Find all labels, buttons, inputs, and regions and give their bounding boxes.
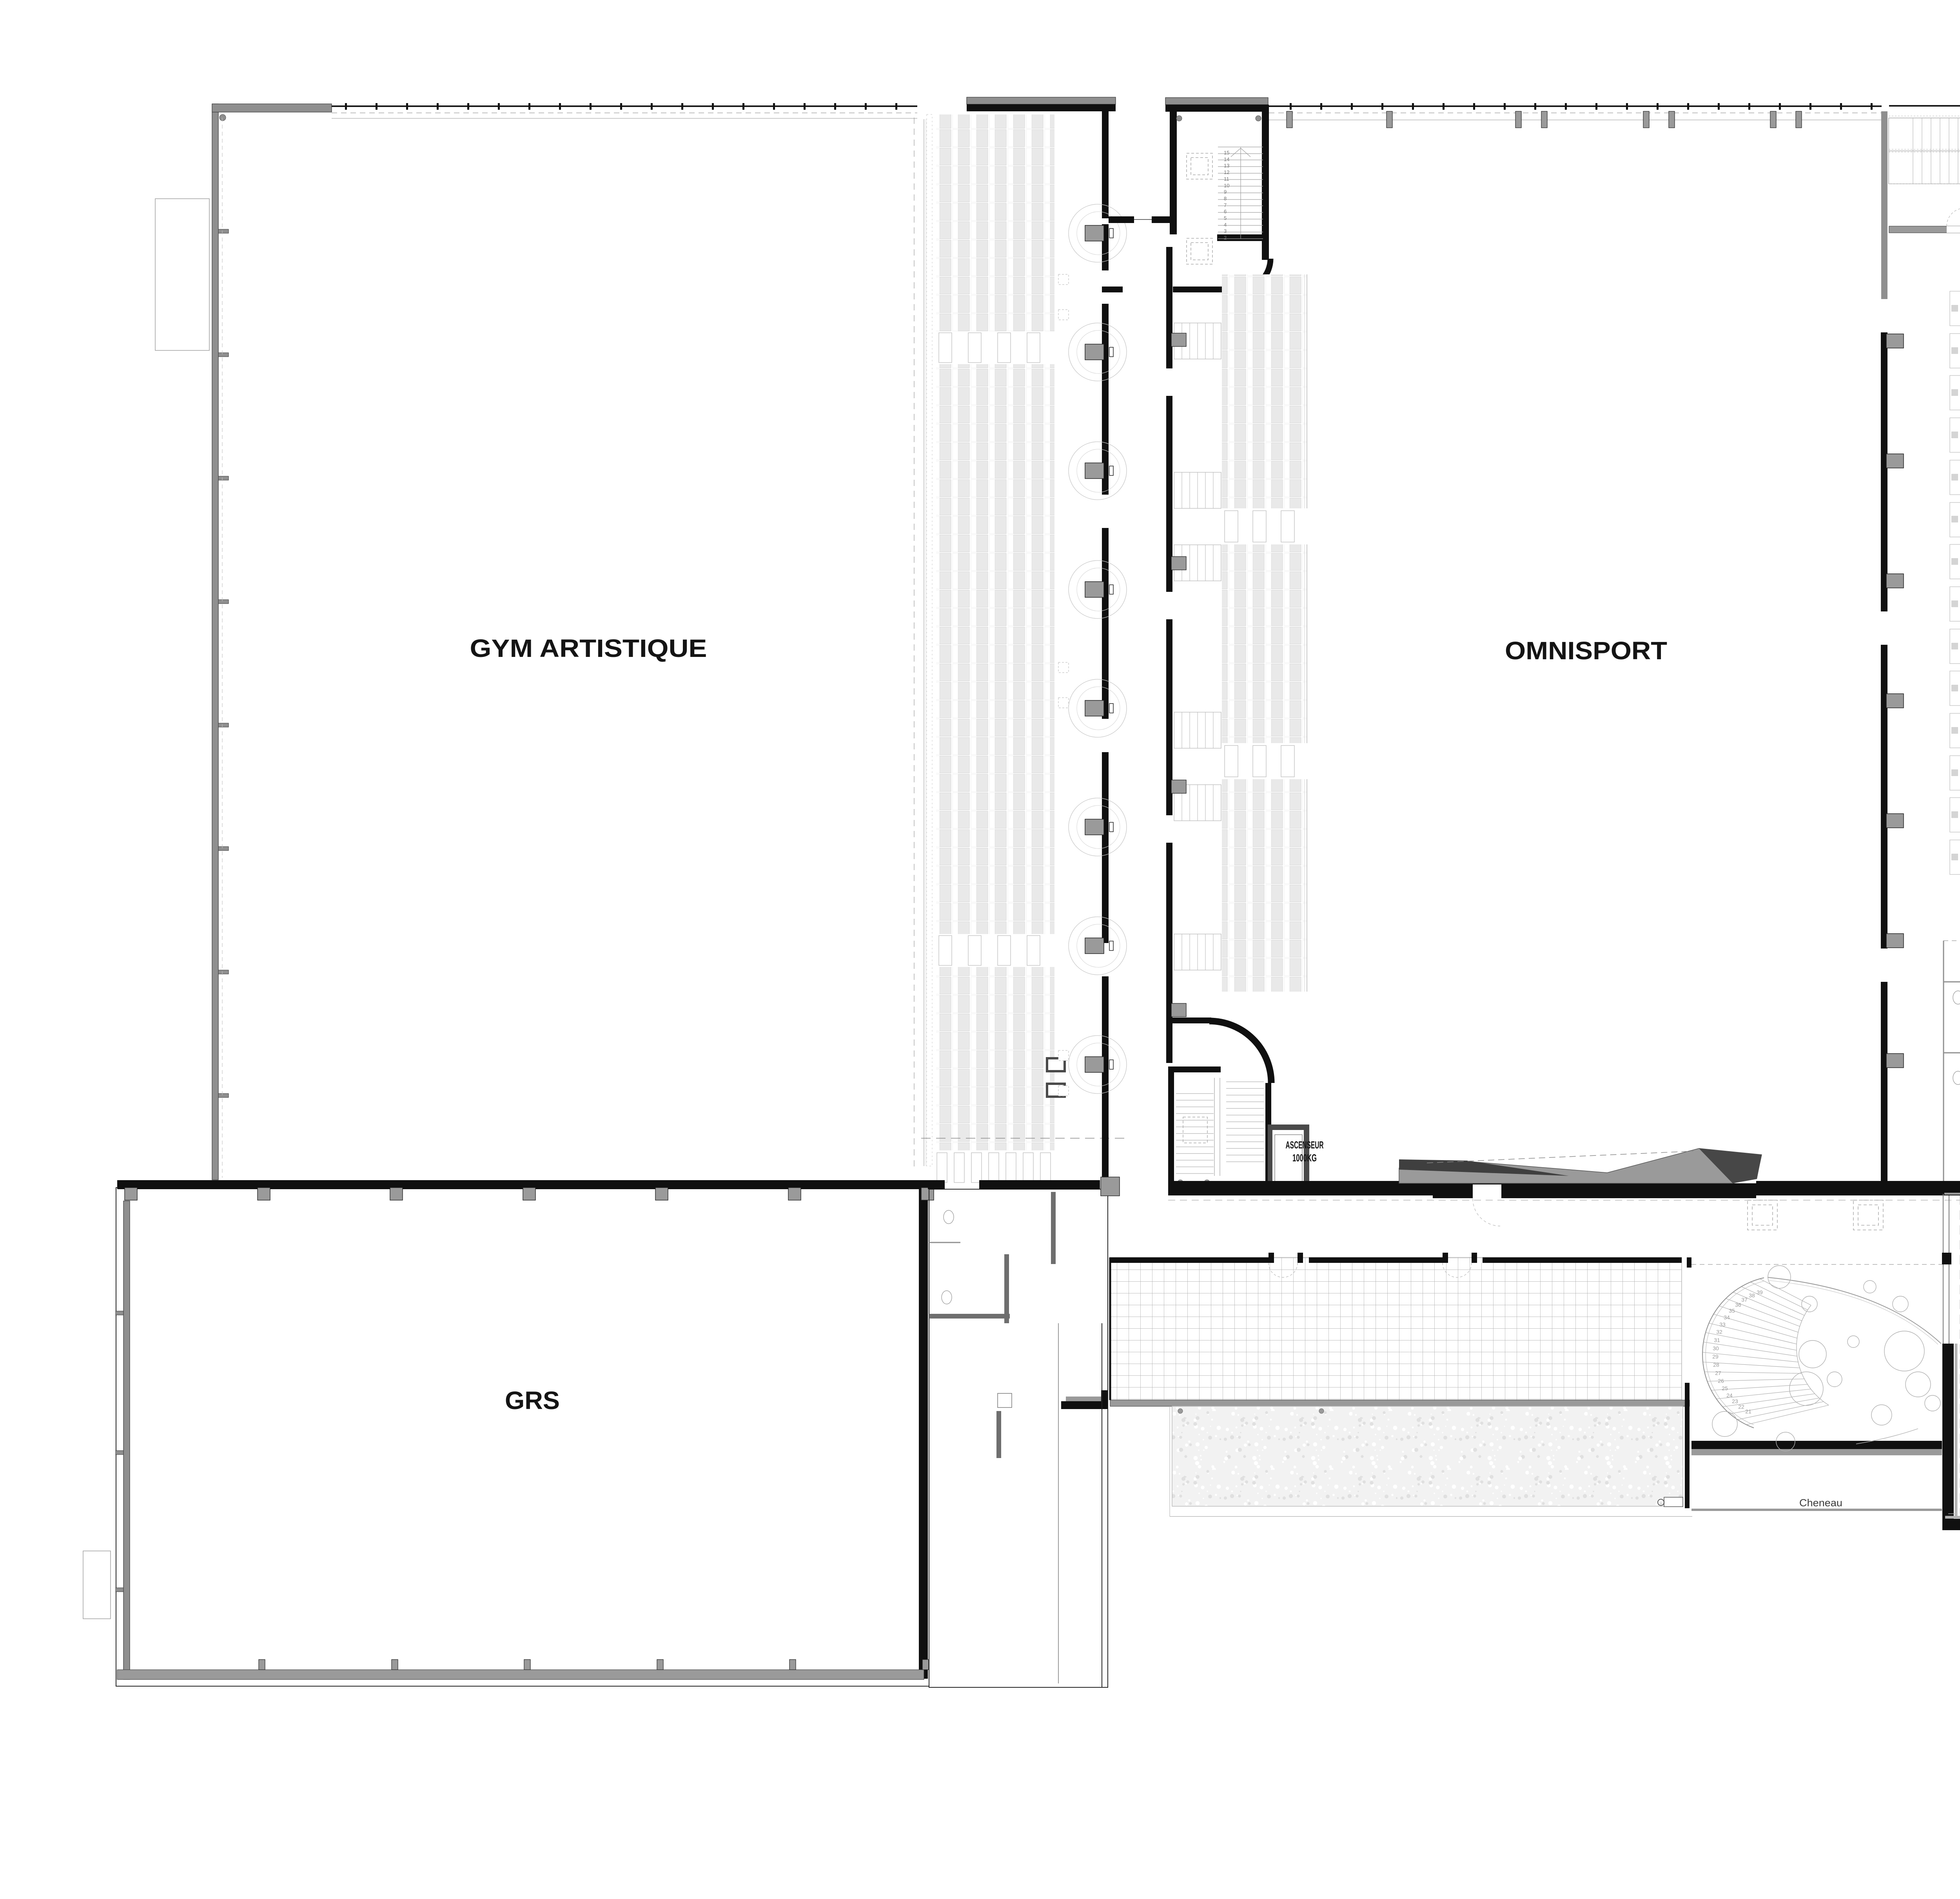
svg-text:39: 39 — [1757, 1289, 1763, 1295]
svg-text:31: 31 — [1714, 1337, 1720, 1343]
svg-text:34: 34 — [1724, 1314, 1730, 1320]
svg-text:14: 14 — [1224, 156, 1229, 162]
svg-text:27: 27 — [1715, 1370, 1721, 1376]
svg-text:3: 3 — [1224, 228, 1227, 234]
svg-text:32: 32 — [1716, 1329, 1722, 1335]
svg-text:38: 38 — [1749, 1292, 1755, 1299]
svg-text:6: 6 — [1224, 209, 1227, 214]
svg-text:23: 23 — [1732, 1398, 1738, 1404]
svg-text:13: 13 — [1224, 163, 1229, 169]
svg-text:2: 2 — [1224, 235, 1227, 241]
svg-text:1000KG: 1000KG — [1292, 1152, 1317, 1164]
svg-text:8: 8 — [1224, 196, 1227, 201]
svg-text:OMNISPORT: OMNISPORT — [1505, 637, 1667, 665]
svg-text:33: 33 — [1719, 1321, 1726, 1328]
svg-text:5: 5 — [1224, 215, 1227, 221]
svg-text:11: 11 — [1224, 176, 1229, 182]
svg-text:35: 35 — [1729, 1308, 1735, 1314]
svg-text:15: 15 — [1224, 150, 1229, 156]
svg-text:GRS: GRS — [505, 1386, 560, 1415]
svg-text:Cheneau: Cheneau — [1799, 1497, 1842, 1509]
svg-text:21: 21 — [1745, 1408, 1751, 1415]
svg-text:12: 12 — [1224, 169, 1229, 175]
svg-text:4: 4 — [1224, 222, 1227, 228]
svg-text:9: 9 — [1224, 189, 1227, 195]
svg-text:29: 29 — [1712, 1353, 1719, 1360]
svg-text:7: 7 — [1224, 202, 1227, 208]
svg-text:28: 28 — [1713, 1362, 1719, 1368]
svg-text:GYM ARTISTIQUE: GYM ARTISTIQUE — [470, 634, 707, 662]
svg-text:22: 22 — [1738, 1404, 1744, 1410]
svg-text:ASCENSEUR: ASCENSEUR — [1286, 1139, 1324, 1151]
svg-text:37: 37 — [1741, 1297, 1748, 1303]
svg-text:10: 10 — [1224, 183, 1229, 189]
svg-text:26: 26 — [1718, 1378, 1724, 1384]
svg-text:24: 24 — [1726, 1392, 1733, 1398]
svg-text:25: 25 — [1722, 1385, 1728, 1391]
svg-text:30: 30 — [1713, 1345, 1719, 1351]
svg-text:36: 36 — [1735, 1302, 1741, 1308]
